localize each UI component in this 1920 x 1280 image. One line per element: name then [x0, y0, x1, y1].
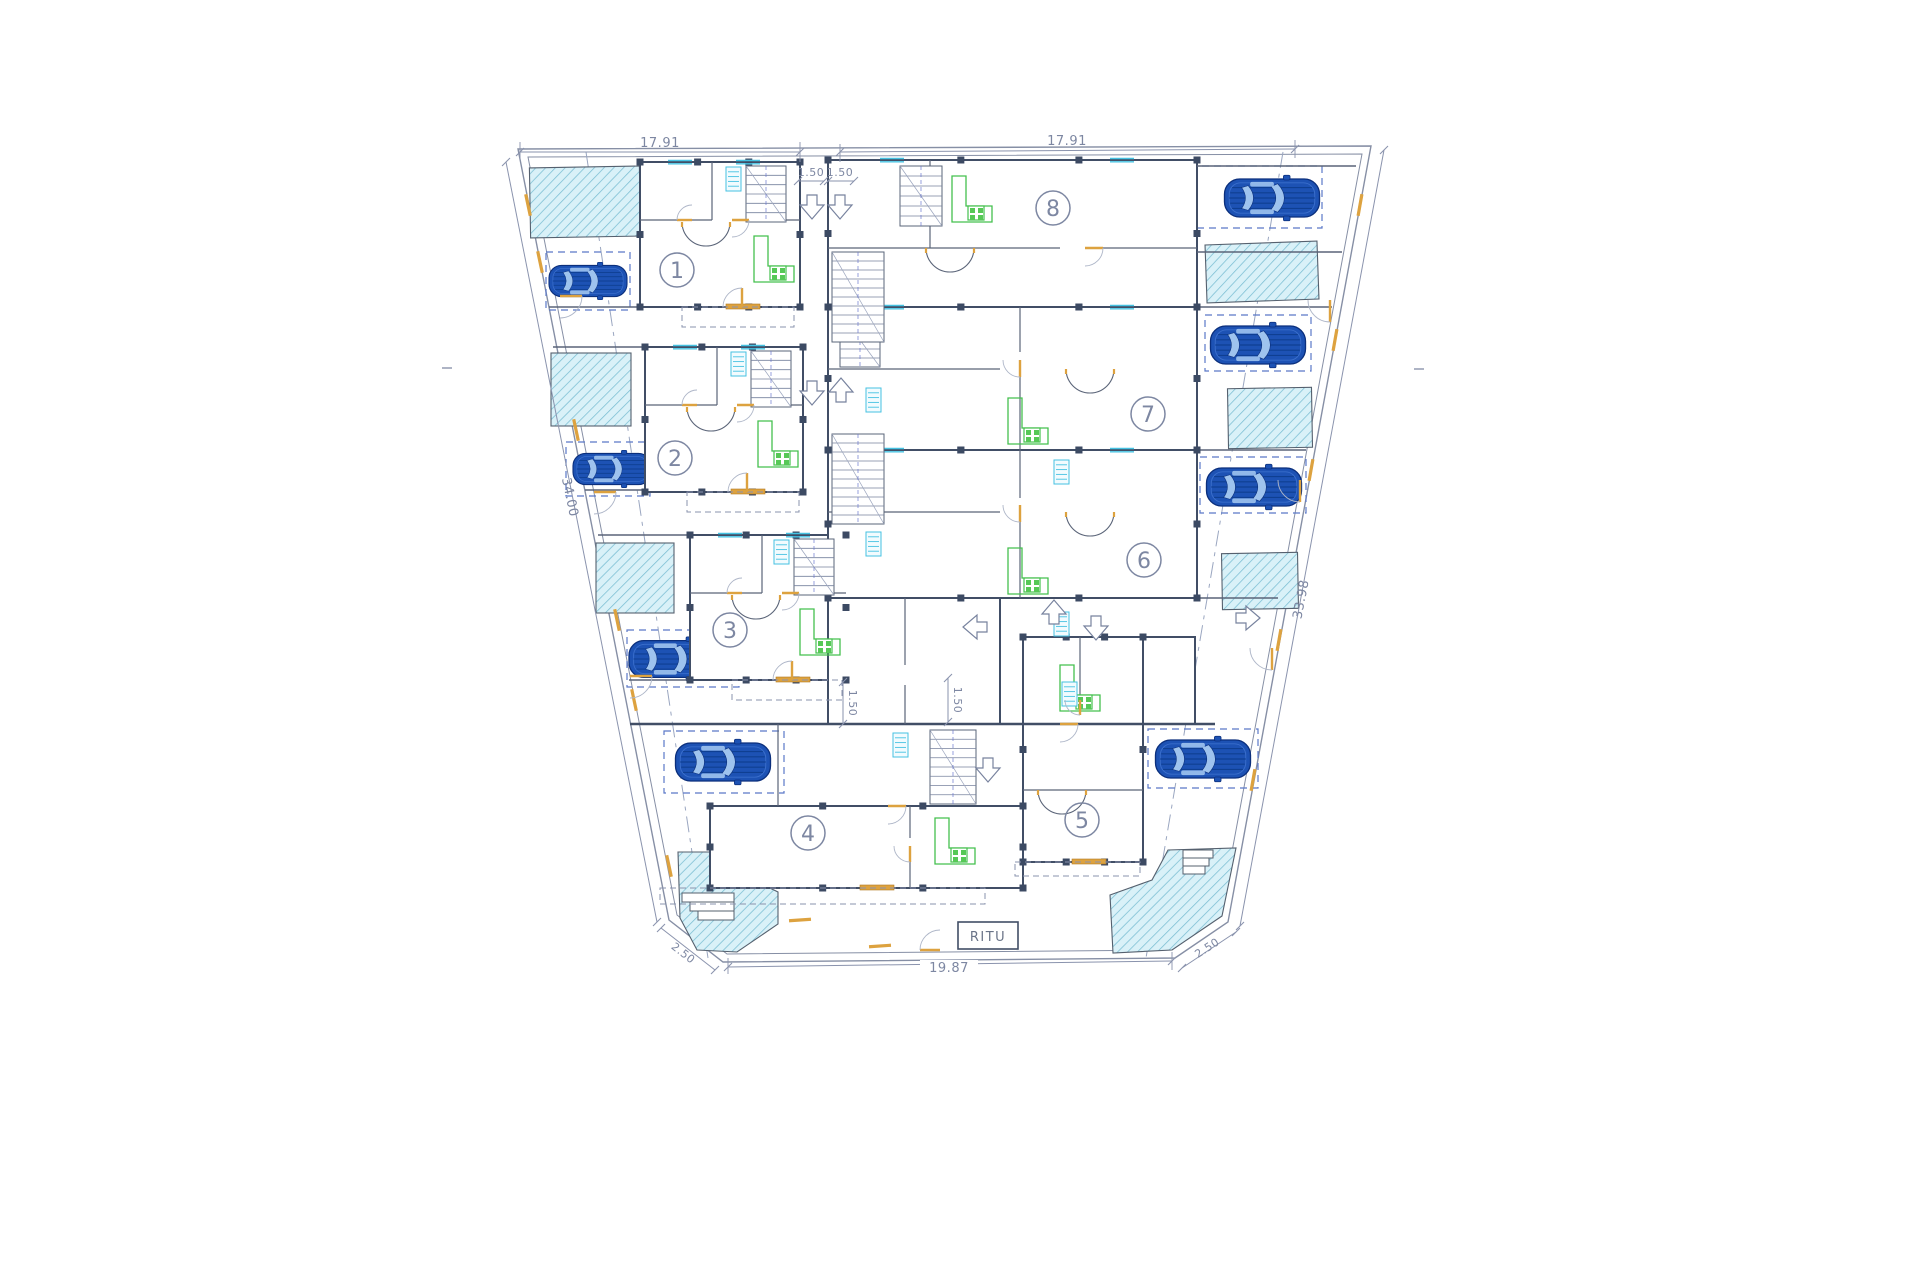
stove-burner — [1034, 580, 1039, 585]
column-marker — [642, 416, 649, 423]
stove-burner — [1026, 430, 1031, 435]
stove-burner — [826, 641, 831, 646]
unit-7-number: 7 — [1141, 403, 1155, 428]
dimension-tick — [1380, 146, 1388, 154]
dimension-tick — [1236, 922, 1244, 930]
column-marker — [843, 604, 850, 611]
stove-burner — [1034, 437, 1039, 442]
car — [1211, 322, 1306, 368]
stove-burner — [780, 268, 785, 273]
column-marker — [687, 532, 694, 539]
dim-top-left-width: 17.91 — [640, 136, 680, 151]
column-marker — [1194, 304, 1201, 311]
stove-burner — [953, 857, 958, 862]
column-marker — [800, 489, 807, 496]
column-marker — [743, 532, 750, 539]
unit-4-number: 4 — [801, 822, 815, 847]
car — [676, 739, 771, 785]
column-marker — [1020, 885, 1027, 892]
stove-burner — [776, 453, 781, 458]
pool — [1205, 241, 1319, 303]
unit-2-number: 2 — [668, 447, 682, 472]
column-marker — [825, 447, 832, 454]
stove-burner — [1086, 704, 1091, 709]
dimension-tick — [502, 158, 510, 166]
column-marker — [825, 521, 832, 528]
steps — [1183, 866, 1205, 874]
dim-top-gap-left: 1.50 — [798, 166, 825, 179]
dimension-tick — [653, 918, 661, 926]
stove-burner — [818, 648, 823, 653]
car — [549, 262, 627, 299]
dim-top-right-width: 17.91 — [1047, 134, 1087, 149]
dim-left-boundary: 34.00 — [558, 476, 581, 518]
column-marker — [825, 375, 832, 382]
stove-burner — [1026, 580, 1031, 585]
car — [1225, 175, 1320, 221]
column-marker — [825, 304, 832, 311]
column-marker — [957, 595, 964, 602]
car — [1156, 736, 1251, 782]
column-marker — [687, 604, 694, 611]
window-ac-unit — [1054, 460, 1069, 484]
column-marker — [642, 489, 649, 496]
car — [573, 450, 651, 487]
window-ac-unit — [731, 352, 746, 376]
column-marker — [800, 344, 807, 351]
steps — [1183, 858, 1209, 866]
floor-plan-page: 17.91 17.91 1.50 1.50 34.00 33.98 19.87 … — [0, 0, 1920, 1280]
stove-burner — [1026, 587, 1031, 592]
stove-burner — [978, 208, 983, 213]
column-marker — [637, 304, 644, 311]
column-marker — [707, 844, 714, 851]
unit-5-number: 5 — [1075, 809, 1089, 834]
car — [1207, 464, 1302, 510]
column-marker — [797, 304, 804, 311]
pool — [529, 166, 640, 238]
steps — [1183, 850, 1213, 858]
building-block — [1143, 637, 1195, 724]
stove-burner — [953, 850, 958, 855]
unit-6-number: 6 — [1137, 549, 1151, 574]
column-marker — [1194, 521, 1201, 528]
column-marker — [1194, 595, 1201, 602]
steps — [690, 902, 734, 911]
column-marker — [1075, 304, 1082, 311]
building-block — [710, 806, 1023, 888]
steps — [682, 893, 734, 902]
utility-box: RITU — [958, 922, 1018, 949]
pool — [551, 353, 631, 426]
column-marker — [919, 803, 926, 810]
site-plan-drawing: 17.91 17.91 1.50 1.50 34.00 33.98 19.87 … — [0, 0, 1920, 1280]
column-marker — [819, 803, 826, 810]
stove-burner — [961, 850, 966, 855]
stove-burner — [970, 208, 975, 213]
column-marker — [957, 304, 964, 311]
column-marker — [957, 447, 964, 454]
column-marker — [825, 595, 832, 602]
stove-burner — [784, 453, 789, 458]
window-ac-unit — [774, 540, 789, 564]
column-marker — [1140, 746, 1147, 753]
column-marker — [1140, 634, 1147, 641]
unit-8-number: 8 — [1046, 197, 1060, 222]
column-marker — [1020, 746, 1027, 753]
column-marker — [843, 677, 850, 684]
column-marker — [1075, 595, 1082, 602]
window-ac-unit — [866, 388, 881, 412]
column-marker — [825, 157, 832, 164]
column-marker — [637, 159, 644, 166]
stove-burner — [826, 648, 831, 653]
column-marker — [1020, 634, 1027, 641]
stove-burner — [772, 268, 777, 273]
column-marker — [800, 416, 807, 423]
column-marker — [957, 157, 964, 164]
window-ac-unit — [893, 733, 908, 757]
dim-mid-gap-right: 1.50 — [951, 687, 964, 714]
orange-gate-tick — [869, 945, 891, 947]
column-marker — [843, 532, 850, 539]
column-marker — [1194, 230, 1201, 237]
stove-burner — [1034, 430, 1039, 435]
pool — [596, 543, 674, 613]
column-marker — [642, 344, 649, 351]
window-ac-unit — [866, 532, 881, 556]
column-marker — [1020, 844, 1027, 851]
column-marker — [1194, 157, 1201, 164]
window-ac-unit — [726, 167, 741, 191]
column-marker — [694, 159, 701, 166]
unit-3-number: 3 — [723, 619, 737, 644]
column-marker — [1020, 803, 1027, 810]
stove-burner — [1034, 587, 1039, 592]
column-marker — [825, 230, 832, 237]
column-marker — [1194, 447, 1201, 454]
dim-top-gap-right: 1.50 — [827, 166, 854, 179]
stove-burner — [1026, 437, 1031, 442]
column-marker — [637, 231, 644, 238]
dim-mid-gap-left: 1.50 — [846, 690, 859, 717]
stove-burner — [780, 275, 785, 280]
dimension-tick — [1178, 964, 1186, 972]
stove-burner — [1086, 697, 1091, 702]
window-ac-unit — [1062, 682, 1077, 706]
orange-gate-tick — [789, 919, 811, 921]
stove-burner — [776, 460, 781, 465]
column-marker — [707, 803, 714, 810]
pool — [1227, 387, 1312, 448]
column-marker — [1075, 157, 1082, 164]
stove-burner — [961, 857, 966, 862]
column-marker — [1075, 447, 1082, 454]
column-marker — [1194, 375, 1201, 382]
stove-burner — [970, 215, 975, 220]
dim-bottom-width: 19.87 — [929, 961, 969, 976]
pool — [1222, 552, 1299, 609]
stove-burner — [784, 460, 789, 465]
unit-1-number: 1 — [670, 259, 684, 284]
dimension-tick — [1232, 928, 1240, 936]
stove-burner — [772, 275, 777, 280]
column-marker — [698, 344, 705, 351]
steps — [698, 911, 734, 920]
stove-burner — [818, 641, 823, 646]
utility-box-label: RITU — [970, 930, 1006, 945]
column-marker — [1101, 634, 1108, 641]
column-marker — [687, 677, 694, 684]
column-marker — [1140, 859, 1147, 866]
column-marker — [797, 231, 804, 238]
stove-burner — [978, 215, 983, 220]
